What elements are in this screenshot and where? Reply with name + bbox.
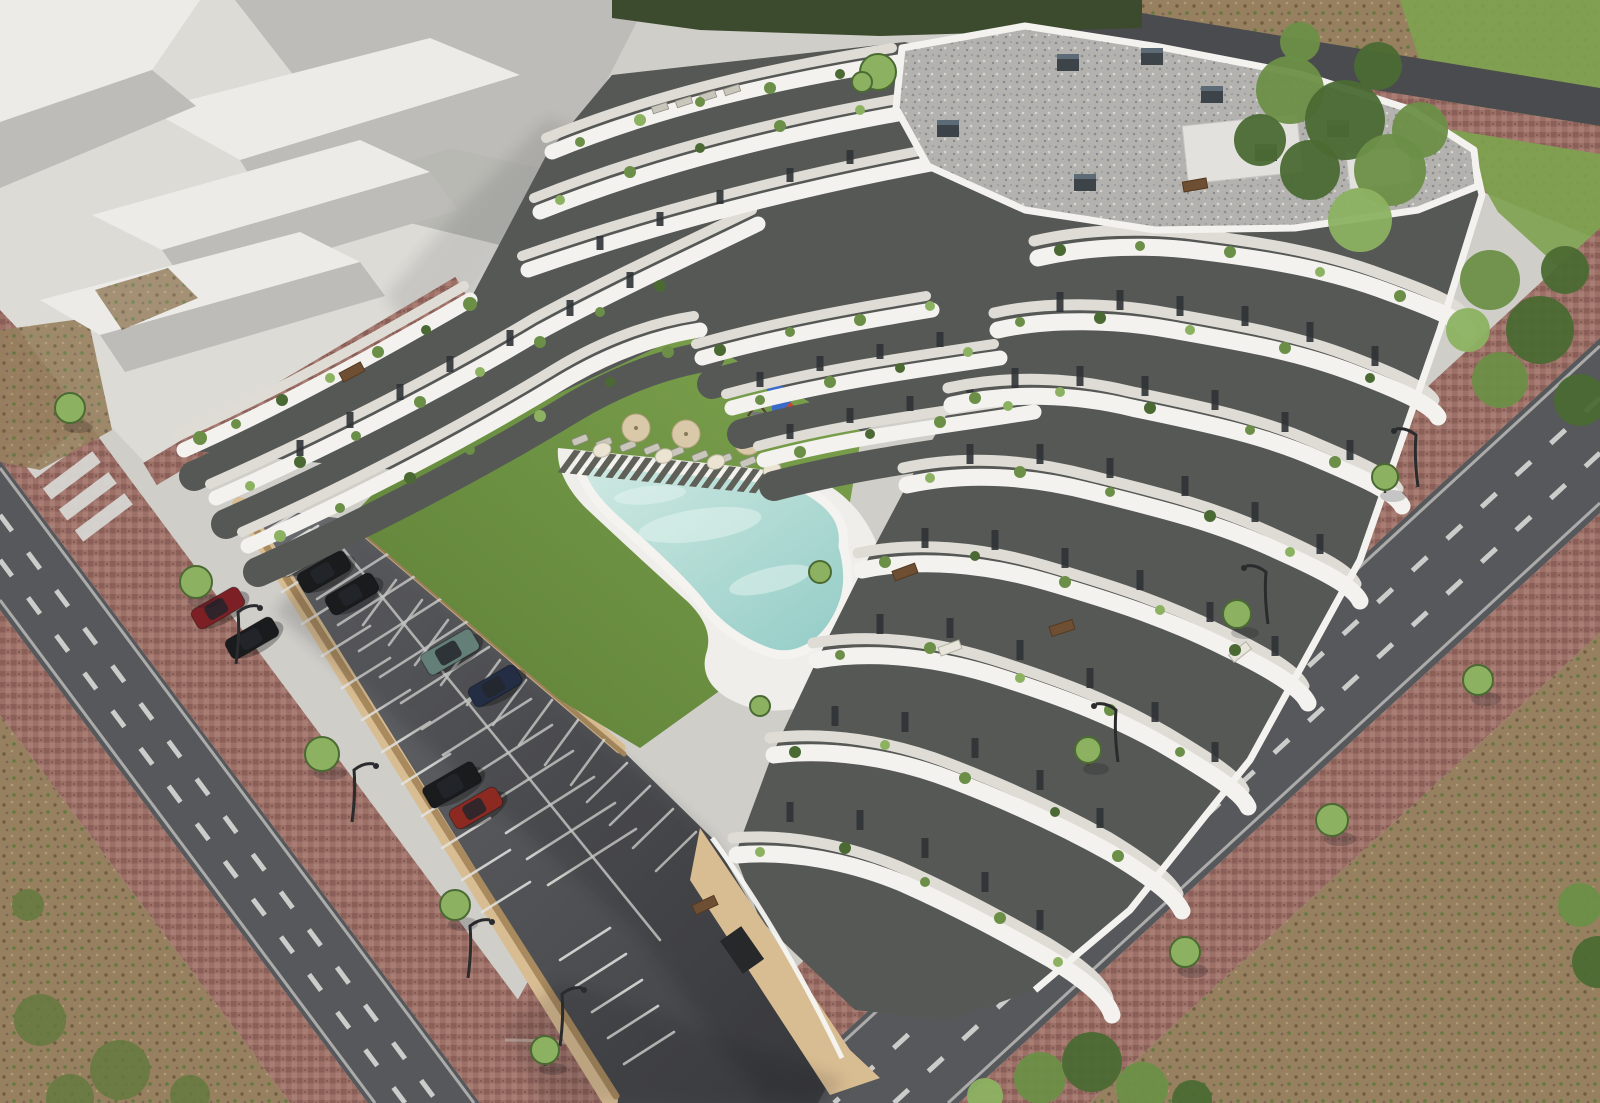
architectural-rendering (0, 0, 1600, 1103)
scene-canvas (0, 0, 1600, 1103)
